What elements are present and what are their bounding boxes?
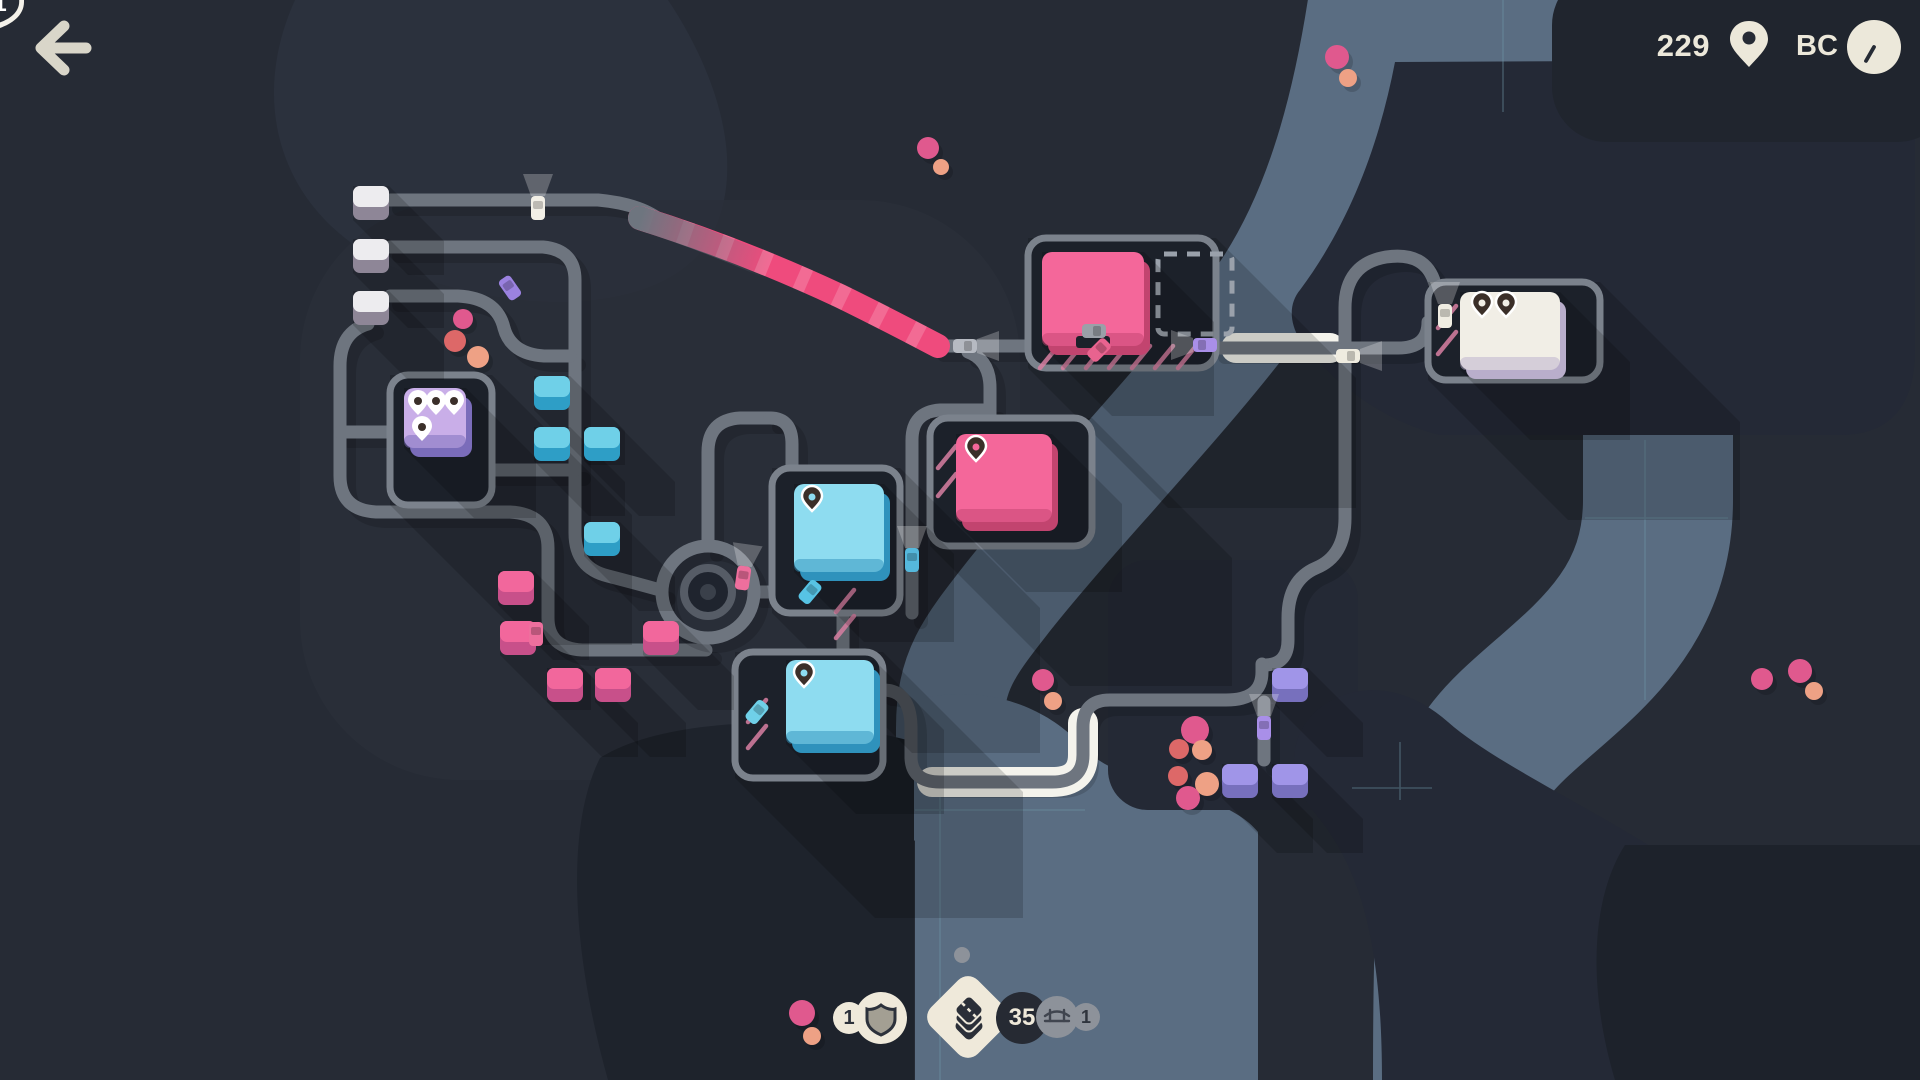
tree-dot bbox=[1192, 740, 1212, 760]
bridge-icon bbox=[1042, 1002, 1072, 1032]
tree-dot bbox=[803, 1027, 821, 1045]
building-lip bbox=[1460, 357, 1560, 370]
tree-dot bbox=[917, 137, 939, 159]
building-lip bbox=[404, 435, 466, 448]
back-button[interactable] bbox=[24, 16, 100, 80]
tree-dot bbox=[1805, 682, 1823, 700]
building-lip bbox=[956, 509, 1052, 522]
tree-dot bbox=[1168, 766, 1188, 786]
week-clock-icon bbox=[1846, 19, 1902, 75]
era-indicator: BC bbox=[1796, 30, 1838, 63]
tree-dot bbox=[444, 330, 466, 352]
bridge-count-label: 1 bbox=[1081, 1007, 1091, 1028]
tree-dot bbox=[1751, 668, 1773, 690]
tree-dot bbox=[453, 309, 473, 329]
tree-dot bbox=[1169, 739, 1189, 759]
game-screen: 1 229 BC 1 35 1 bbox=[0, 0, 1920, 1080]
shield-icon bbox=[861, 998, 901, 1038]
road-tiles-icon bbox=[938, 986, 1000, 1048]
tree-dot bbox=[1788, 659, 1812, 683]
shield-reward-badge bbox=[855, 992, 907, 1044]
destination-score: 229 bbox=[1648, 28, 1710, 64]
tree-dot bbox=[1339, 69, 1357, 87]
back-arrow-icon bbox=[24, 16, 100, 80]
destination-score-value: 229 bbox=[1657, 28, 1710, 63]
tree-dot bbox=[933, 159, 949, 175]
era-label: BC bbox=[1796, 30, 1838, 62]
tree-dot bbox=[789, 1000, 815, 1026]
motorway-number: 1 bbox=[0, 0, 7, 17]
building-lip bbox=[786, 731, 874, 744]
car bbox=[1082, 324, 1106, 338]
city-map-canvas[interactable]: 1 bbox=[0, 0, 1920, 1080]
tree-dot bbox=[1032, 669, 1054, 691]
map-pin-icon bbox=[1724, 14, 1774, 76]
tree-dot bbox=[1325, 45, 1349, 69]
bridge-reward-count: 1 bbox=[1072, 1003, 1100, 1031]
building-lip bbox=[794, 559, 884, 572]
shield-count-label: 1 bbox=[843, 1007, 854, 1030]
timeline-dot bbox=[954, 947, 970, 963]
tree-dot bbox=[1176, 786, 1200, 810]
tree-dot bbox=[467, 346, 489, 368]
car bbox=[529, 622, 543, 646]
tiles-count-label: 35 bbox=[1009, 1004, 1036, 1032]
tree-dot bbox=[1181, 716, 1209, 744]
tree-dot bbox=[1044, 692, 1062, 710]
